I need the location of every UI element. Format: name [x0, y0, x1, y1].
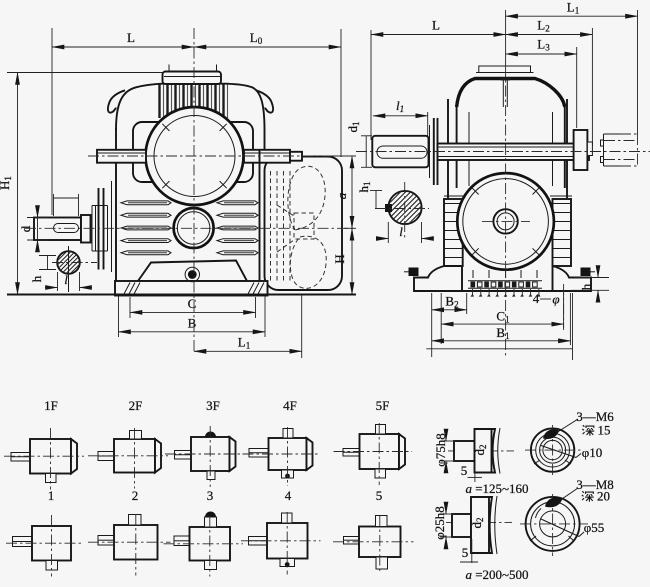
- svg-text:20: 20: [597, 489, 610, 504]
- svg-text:2F: 2F: [129, 398, 143, 413]
- svg-text:h: h: [29, 275, 44, 282]
- svg-text:C: C: [188, 296, 197, 311]
- svg-text:3F: 3F: [206, 398, 220, 413]
- svg-text:3: 3: [207, 488, 214, 503]
- svg-text:a =125~160: a =125~160: [465, 481, 528, 496]
- svg-text:a =200~500: a =200~500: [465, 567, 528, 582]
- svg-text:φ75h8: φ75h8: [433, 433, 448, 467]
- svg-text:a: a: [334, 192, 349, 199]
- svg-text:1: 1: [48, 488, 55, 503]
- svg-text:l: l: [64, 272, 68, 287]
- svg-text:φ10: φ10: [582, 445, 603, 460]
- svg-text:φ: φ: [552, 292, 559, 307]
- svg-text:L: L: [127, 30, 135, 45]
- svg-text:1F: 1F: [44, 398, 58, 413]
- svg-text:15: 15: [598, 423, 611, 438]
- svg-text:5F: 5F: [376, 398, 390, 413]
- svg-text:4F: 4F: [283, 398, 297, 413]
- svg-text:l: l: [399, 224, 403, 239]
- svg-text:4: 4: [533, 291, 540, 306]
- svg-text:L: L: [432, 18, 440, 33]
- svg-text:H: H: [332, 254, 347, 263]
- svg-text:5: 5: [462, 545, 469, 560]
- svg-text:h: h: [579, 283, 594, 290]
- svg-text:2: 2: [132, 488, 139, 503]
- svg-text:5: 5: [461, 463, 468, 478]
- svg-text:4: 4: [285, 488, 292, 503]
- svg-text:5: 5: [376, 488, 383, 503]
- svg-text:B: B: [188, 316, 197, 331]
- svg-text:φ25h8: φ25h8: [432, 506, 447, 540]
- svg-text:φ55: φ55: [584, 520, 605, 535]
